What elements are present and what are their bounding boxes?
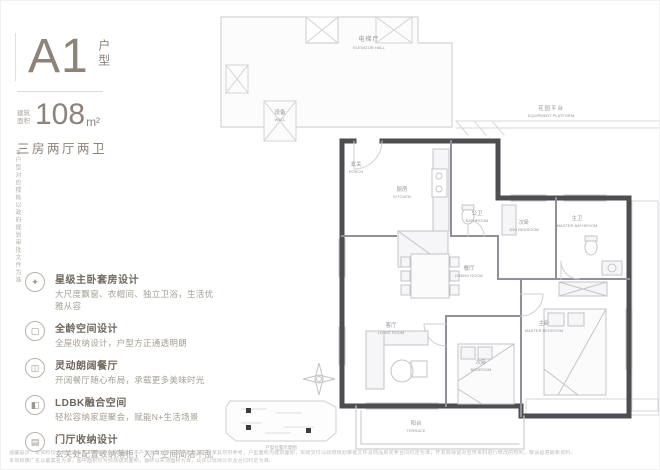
room-sublabel-bathroom: BATHROOM (466, 218, 489, 223)
room-label-master-bath: 主卫 (571, 214, 583, 222)
unit-type-suffix: 户型 (96, 39, 113, 69)
unit-info-panel: A1 户型 建筑面积 108 m² 三房两厅两卫 (15, 33, 210, 157)
feature-desc: 轻松容纳家庭聚会，赋能N+生活场景 (55, 411, 199, 423)
room-sublabel-kitchen: KITCHEN (393, 194, 411, 199)
floorplan-drawing: 电梯厅 ELEVATOR HALL 设备 WELL 花园平台 EQUIPMENT… (206, 9, 660, 454)
unit-name: A1 (28, 33, 89, 81)
feature-title: 灵动朗阔餐厅 (55, 357, 205, 372)
room-label-well: 设备 (274, 108, 286, 116)
room-sublabel-2nd-bedroom: 2ND BEDROOM (509, 227, 539, 232)
room-sublabel-master-bath: MASTER BATHROOM (557, 223, 598, 228)
feature-desc: 开阔餐厅随心布局，承载更多美味时光 (55, 374, 205, 386)
room-sublabel-elevator-hall: ELEVATOR HALL (353, 45, 386, 50)
vertical-side-note: 本户型对应楼栋以政府规划审批文件为准 (13, 149, 22, 289)
compass-icon (303, 363, 335, 395)
storage-icon: ▤ (25, 432, 45, 452)
area-unit: m² (86, 115, 100, 129)
keyplan (226, 401, 336, 441)
room-sublabel-porch: PORCH (349, 169, 364, 174)
room-label-elevator-hall: 电梯厅 (358, 35, 379, 43)
room-label-master-bedroom: 主卧 (538, 319, 550, 327)
room-label-living: 客厅 (385, 321, 397, 329)
room-label-porch: 玄关 (350, 160, 362, 168)
gem-icon: ✦ (25, 272, 45, 292)
disclaimer-line-2: 本项目推广名以备案名为准，图中面积均为预测建筑面积，最终以实测面积为准，具体以现… (9, 458, 651, 466)
room-label-garden-platform: 花园平台 (538, 104, 564, 112)
room-sublabel-dining: DINING ROOM (455, 273, 483, 278)
room-label-bedroom: 次卧 (475, 358, 487, 366)
disclaimer-line-1: 温馨提示：本资料仅为要约邀请，不构成要约或承诺；本户型图仅为示意图，室内布置及家… (9, 450, 651, 458)
room-label-dining: 餐厅 (463, 264, 475, 272)
terrace-outline (356, 406, 524, 449)
list-item: ◫ 灵动朗阔餐厅 开阔餐厅随心布局，承载更多美味时光 (25, 357, 220, 386)
room-sublabel-master-bedroom: MASTER BEDROOM (525, 328, 563, 333)
floorplan-poster: A1 户型 建筑面积 108 m² 三房两厅两卫 本户型对应楼栋以政府规划审批文… (0, 0, 660, 470)
feature-title: 星级主卧套房设计 (55, 271, 220, 286)
room-label-kitchen: 厨房 (396, 185, 408, 193)
room-sublabel-living: LIVING ROOM (378, 330, 405, 335)
room-label-terrace: 阳台 (410, 419, 422, 427)
room-sublabel-bedroom: BEDROOM (471, 367, 492, 372)
dining-icon: ◫ (25, 358, 45, 378)
list-item: ✦ 星级主卧套房设计 大尺度飘窗、衣帽间、独立卫浴，生活优雅从容 (25, 271, 220, 312)
room-sublabel-well: WELL (275, 117, 287, 122)
unit-area: 建筑面积 108 m² (17, 100, 210, 130)
feature-title: 门厅收纳设计 (55, 431, 213, 446)
feature-title: 全龄空间设计 (55, 320, 187, 335)
area-value: 108 (35, 100, 85, 130)
divider (17, 91, 103, 92)
room-sublabel-garden-platform: EQUIPMENT PLATFORM (528, 113, 574, 118)
unit-title: A1 户型 (15, 33, 210, 81)
list-item: ◧ LDBK融合空间 轻松容纳家庭聚会，赋能N+生活场景 (25, 394, 220, 423)
room-label-2nd-bedroom: 次卧 (518, 218, 530, 226)
feature-title: LDBK融合空间 (55, 394, 199, 409)
area-label: 建筑面积 (17, 110, 32, 126)
feature-desc: 全屋收纳设计，户型方正通透明朗 (55, 337, 187, 349)
feature-desc: 大尺度飘窗、衣帽间、独立卫浴，生活优雅从容 (55, 288, 220, 312)
feature-list: ✦ 星级主卧套房设计 大尺度飘窗、衣帽间、独立卫浴，生活优雅从容 ▢ 全龄空间设… (25, 271, 220, 470)
room-sublabel-terrace: TERRACE (406, 428, 425, 433)
room-label-bathroom: 公卫 (471, 210, 483, 217)
space-icon: ▢ (25, 321, 45, 341)
rooms-count-label: 三房两厅两卫 (17, 138, 210, 157)
disclaimer: 温馨提示：本资料仅为要约邀请，不构成要约或承诺；本户型图仅为示意图，室内布置及家… (9, 450, 651, 465)
corridor-outline (221, 17, 452, 127)
ldbk-icon: ◧ (25, 395, 45, 415)
list-item: ▢ 全龄空间设计 全屋收纳设计，户型方正通透明朗 (25, 320, 220, 349)
